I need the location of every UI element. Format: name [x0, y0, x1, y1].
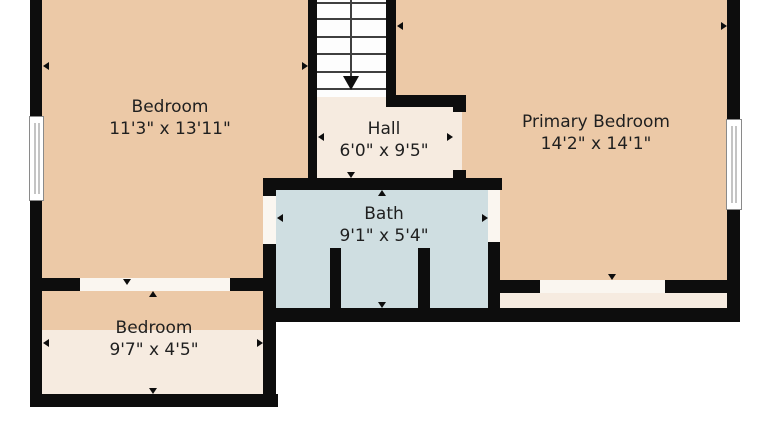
room-dims: 11'3" x 13'11"	[109, 118, 231, 140]
measure-marker-primary-left	[397, 22, 403, 30]
room-dims: 14'2" x 14'1"	[522, 133, 670, 155]
stair-step	[317, 2, 386, 4]
wall-stairs-left	[308, 0, 317, 190]
measure-marker-primary-right	[721, 22, 727, 30]
measure-marker-hall-bottom	[347, 172, 355, 178]
room-name: Bath	[339, 203, 428, 225]
measure-marker-primary-bottom	[608, 274, 616, 280]
window-right	[726, 119, 742, 210]
stair-step	[317, 18, 386, 20]
stair-direction-line	[350, 0, 352, 78]
measure-marker-hall-left	[318, 133, 324, 141]
stair-down-arrow-icon	[343, 76, 359, 90]
measure-marker-bedroom-upper-left	[43, 62, 49, 70]
opening-bath-left-door	[263, 196, 276, 244]
room-name: Bedroom	[109, 317, 198, 339]
measure-marker-bath-left	[277, 214, 283, 222]
room-label-primary-bedroom: Primary Bedroom 14'2" x 14'1"	[522, 111, 670, 155]
wall-stairs-right	[386, 0, 396, 107]
measure-marker-hall-right	[447, 133, 453, 141]
measure-marker-bath-top	[378, 190, 386, 196]
stair-step	[317, 71, 386, 73]
wall-bath-partition-left	[330, 248, 341, 308]
measure-marker-bedroom-upper-bottom	[123, 279, 131, 285]
window-glass-line	[34, 123, 39, 194]
window-left	[29, 116, 44, 201]
wall-primary-closet-left	[500, 280, 540, 293]
wall-primary-closet-right	[665, 280, 727, 293]
wall-hall-right-lower-stub	[453, 170, 466, 178]
measure-marker-bedroom-upper-right	[302, 62, 308, 70]
measure-marker-bath-right	[482, 214, 488, 222]
room-dims: 9'7" x 4'5"	[109, 339, 198, 361]
wall-left-exterior	[30, 0, 42, 407]
opening-bath-right-door	[488, 190, 500, 242]
opening-bedroom-divider	[80, 278, 230, 291]
measure-marker-bedroom-lower-top	[149, 291, 157, 297]
wall-bedroom-divider-left	[30, 278, 80, 291]
wall-hall-top	[386, 95, 466, 107]
wall-bath-top	[263, 178, 502, 190]
room-name: Primary Bedroom	[522, 111, 670, 133]
room-name: Hall	[339, 118, 428, 140]
measure-marker-bedroom-lower-right	[257, 339, 263, 347]
opening-primary-closet	[540, 280, 665, 293]
wall-bottom-left-exterior	[30, 394, 278, 407]
room-label-hall: Hall 6'0" x 9'5"	[339, 118, 428, 162]
stair-step	[317, 53, 386, 55]
primary-closet-floor	[500, 293, 727, 308]
room-label-bath: Bath 9'1" x 5'4"	[339, 203, 428, 247]
measure-marker-bedroom-lower-left	[43, 339, 49, 347]
stair-step	[317, 36, 386, 38]
stairs	[317, 0, 386, 97]
room-label-bedroom-upper: Bedroom 11'3" x 13'11"	[109, 96, 231, 140]
measure-marker-bedroom-lower-bottom	[149, 388, 157, 394]
room-label-bedroom-lower: Bedroom 9'7" x 4'5"	[109, 317, 198, 361]
window-glass-line	[732, 126, 737, 203]
opening-hall-to-primary-door	[453, 112, 462, 170]
wall-bottom-exterior	[263, 308, 740, 322]
floor-plan: Bedroom 11'3" x 13'11" Hall 6'0" x 9'5" …	[0, 0, 768, 432]
room-name: Bedroom	[109, 96, 231, 118]
room-dims: 6'0" x 9'5"	[339, 140, 428, 162]
measure-marker-bath-bottom	[378, 302, 386, 308]
room-dims: 9'1" x 5'4"	[339, 225, 428, 247]
wall-bath-partition-right	[418, 248, 430, 308]
